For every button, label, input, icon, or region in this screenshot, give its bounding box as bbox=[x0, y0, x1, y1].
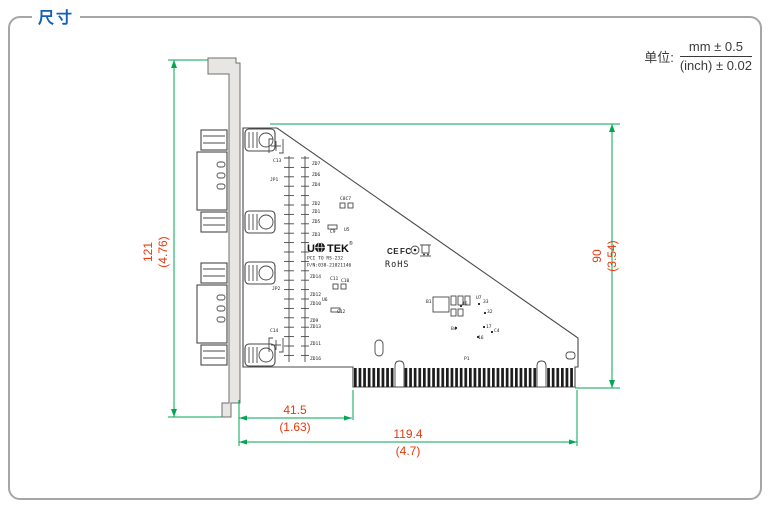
unit-mm-tolerance: mm ± 0.5 bbox=[680, 40, 752, 57]
component-label: JP1 bbox=[270, 177, 279, 183]
dimension-edge-offset: 41.5 (1.63) bbox=[239, 390, 353, 446]
component-label: C13 bbox=[273, 158, 282, 164]
db9-shell bbox=[197, 152, 227, 210]
component-label: C4 bbox=[494, 328, 500, 334]
dim-41-5-mm: 41.5 bbox=[283, 403, 307, 417]
unit-note: 单位: mm ± 0.5 (inch) ± 0.02 bbox=[644, 40, 752, 74]
unit-label: 单位: bbox=[644, 47, 674, 66]
brand-logo-tek: TEK bbox=[327, 243, 349, 255]
component-label: ZD14 bbox=[310, 274, 321, 280]
fcc-mark: FC bbox=[400, 247, 412, 256]
dim-119-4-inch: (4.7) bbox=[396, 444, 421, 458]
pcb-card bbox=[243, 128, 578, 387]
component-label: C9 bbox=[330, 229, 336, 235]
component-label: 17 bbox=[486, 324, 492, 330]
component-label: C10 bbox=[341, 278, 350, 284]
unit-inch-tolerance: (inch) ± 0.02 bbox=[680, 57, 752, 73]
component-label: C12 bbox=[337, 309, 346, 315]
jack-screw bbox=[245, 344, 275, 366]
component-label: 32 bbox=[487, 309, 493, 315]
dim-90-mm: 90 bbox=[590, 249, 604, 263]
page-title: 尺寸 bbox=[32, 4, 80, 28]
component-label: ZD1 bbox=[312, 209, 321, 215]
component-label: ZD13 bbox=[310, 324, 321, 330]
ce-mark: CE bbox=[387, 247, 399, 256]
model-text: PCI TO RS-232 bbox=[307, 256, 343, 262]
component-label: ZD11 bbox=[310, 341, 321, 347]
dim-119-4-mm: 119.4 bbox=[393, 427, 422, 441]
component-label: C8C7 bbox=[340, 196, 351, 202]
component-label: 33 bbox=[483, 299, 489, 305]
component-label: ZD10 bbox=[310, 301, 321, 307]
brand-logo-u: U bbox=[307, 243, 315, 255]
component-label: B1 bbox=[426, 299, 432, 305]
brand-globe-icon bbox=[315, 243, 325, 253]
component-label: C11 bbox=[330, 276, 339, 282]
component-label: ZD12 bbox=[310, 292, 321, 298]
component-label: 16 bbox=[478, 335, 484, 341]
unit-fraction: mm ± 0.5 (inch) ± 0.02 bbox=[680, 40, 752, 74]
component-label: ZD3 bbox=[312, 232, 321, 238]
jack-screw bbox=[245, 262, 275, 284]
dim-121-mm: 121 bbox=[141, 242, 155, 262]
jack-screw bbox=[245, 211, 275, 233]
dim-121-inch: (4.76) bbox=[156, 236, 170, 267]
component-label: ZD5 bbox=[312, 219, 321, 225]
component-label: ZD4 bbox=[312, 182, 321, 188]
p1-label: P1 bbox=[464, 356, 470, 362]
component-label: C14 bbox=[270, 328, 279, 334]
dim-90-inch: (3.54) bbox=[605, 240, 619, 271]
component-label: ZD7 bbox=[312, 161, 321, 167]
component-label: U6 bbox=[322, 297, 328, 303]
part-number-text: P/N:038-21021146 bbox=[307, 263, 351, 269]
component-label: 46 bbox=[462, 301, 468, 307]
component-label: ZD16 bbox=[310, 356, 321, 362]
pcb-outline bbox=[243, 128, 578, 387]
registered-mark: ® bbox=[349, 240, 353, 247]
component-label: ZD9 bbox=[310, 318, 319, 324]
db9-shell bbox=[197, 285, 227, 343]
component-label: ZD2 bbox=[312, 201, 321, 207]
jack-screw bbox=[245, 129, 275, 151]
component-label: U5 bbox=[344, 227, 350, 233]
component-label: B4 bbox=[451, 326, 457, 332]
component-label: U7 bbox=[476, 295, 482, 301]
component-label: ZD6 bbox=[312, 172, 321, 178]
dimension-drawing: U TEK ® PCI TO RS-232 P/N:038-21021146 C… bbox=[0, 0, 770, 507]
dim-41-5-inch: (1.63) bbox=[279, 420, 310, 434]
component-label: JP2 bbox=[272, 286, 281, 292]
rohs-text: RoHS bbox=[385, 260, 409, 270]
